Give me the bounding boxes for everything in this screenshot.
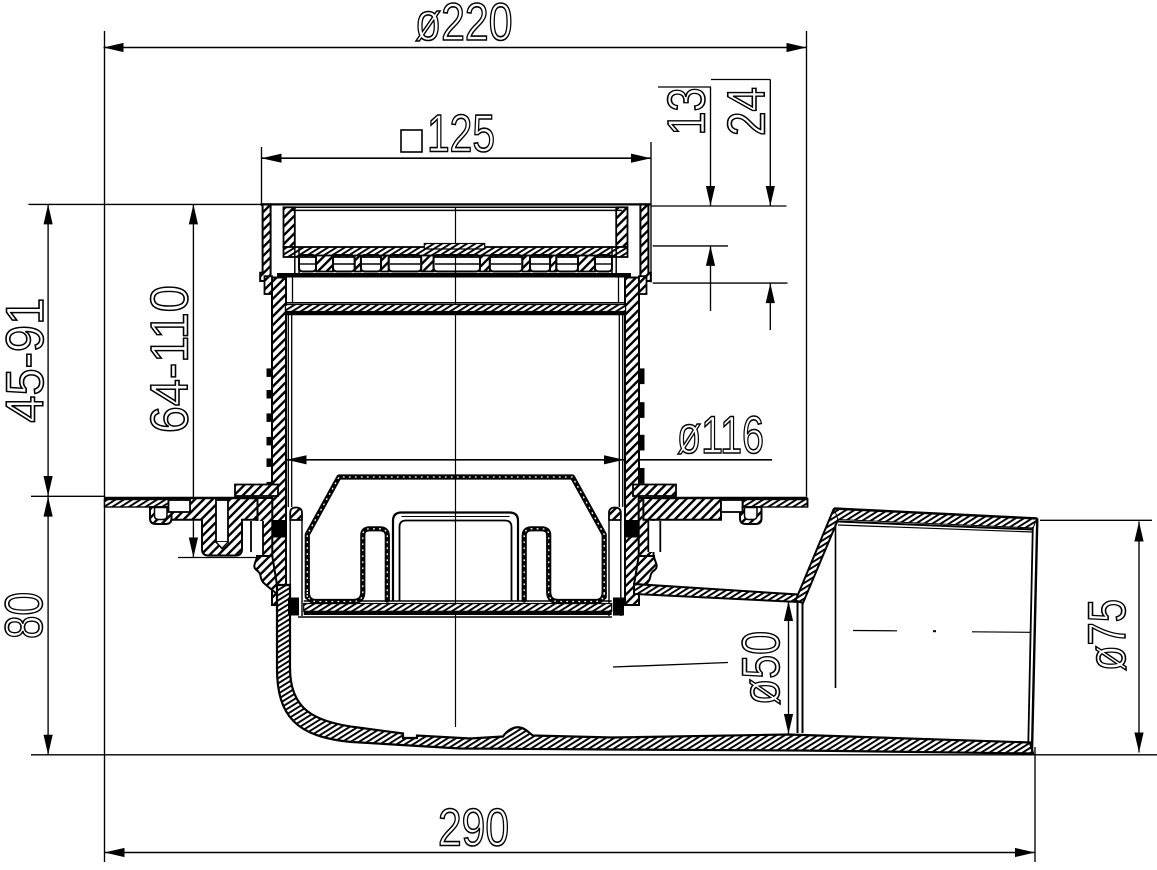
svg-text:ø50: ø50: [732, 631, 791, 705]
svg-text:125: 125: [427, 105, 495, 164]
svg-text:ø116: ø116: [677, 406, 764, 465]
svg-text:13: 13: [658, 88, 717, 136]
svg-text:80: 80: [0, 592, 54, 639]
svg-text:45-91: 45-91: [0, 298, 55, 423]
svg-text:ø220: ø220: [415, 0, 513, 52]
svg-text:64-110: 64-110: [141, 285, 200, 433]
svg-text:290: 290: [438, 799, 509, 858]
svg-text:24: 24: [718, 87, 777, 136]
svg-text:ø75: ø75: [1078, 599, 1137, 671]
